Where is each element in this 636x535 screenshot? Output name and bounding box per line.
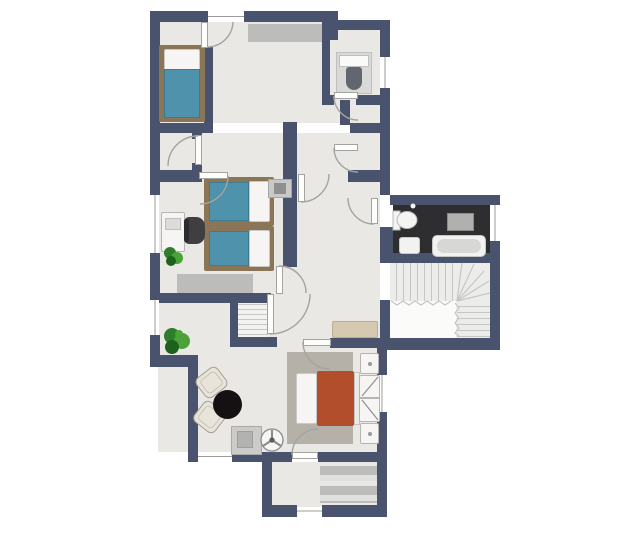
stair-break-line xyxy=(391,301,451,305)
toilet-icon xyxy=(393,204,417,231)
stair-break-line xyxy=(455,303,459,336)
plant-icon xyxy=(164,328,190,354)
door-arc xyxy=(348,198,374,224)
door-arc xyxy=(279,266,306,293)
door-arc xyxy=(200,176,228,204)
plant-icon xyxy=(164,247,183,266)
ceiling-fan-icon xyxy=(261,429,283,451)
wardrobe-marks xyxy=(360,377,379,420)
door-arc xyxy=(334,96,358,120)
door-arc xyxy=(207,22,233,47)
floor-plan xyxy=(0,0,636,535)
door-arc xyxy=(301,174,329,202)
door-arc xyxy=(334,148,358,172)
overlay xyxy=(0,0,636,535)
winder-line xyxy=(457,293,490,301)
door-arc xyxy=(303,342,330,369)
door-arc xyxy=(292,429,318,455)
door-arc xyxy=(168,136,198,166)
door-arc xyxy=(270,294,310,334)
